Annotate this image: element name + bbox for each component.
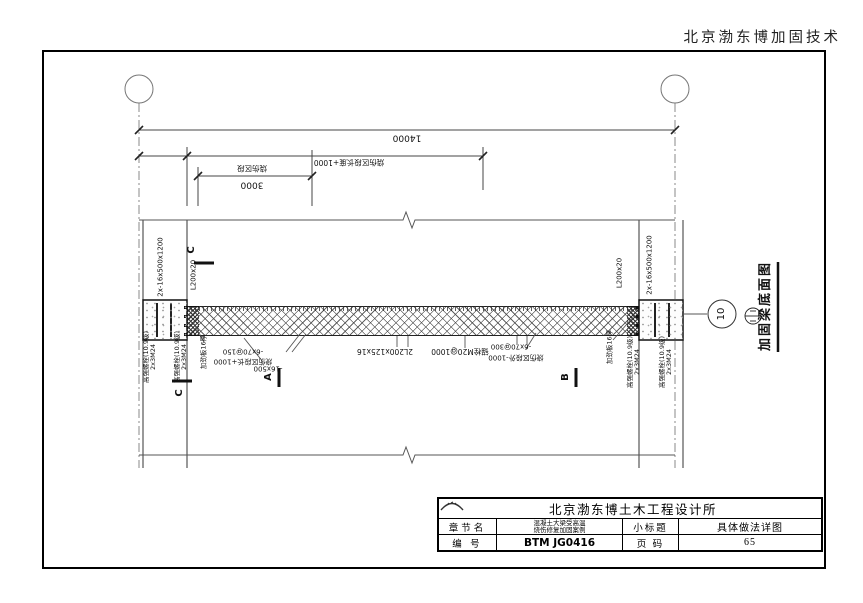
drawing-title: 加固梁底面图	[759, 261, 773, 351]
section-mark-c-top: C	[187, 246, 198, 253]
number-label: 编 号	[439, 535, 497, 550]
label-angle-pair-right: 2x-16x500x1200	[646, 235, 653, 295]
dim-zone-name: 烧伤区段	[237, 164, 267, 172]
bolt-heads	[184, 306, 639, 336]
title-block: 北京渤东博土木工程设计所 章节名 混凝土大梁受高温 烧伤修复加固案例 小标题 具…	[437, 497, 823, 552]
grid-centerlines	[139, 103, 675, 468]
edge-lines	[139, 212, 675, 463]
label-anchor-bolt: 锚栓M20@1000	[431, 347, 489, 355]
subtitle-value: 具体做法详图	[679, 519, 821, 534]
label-hs-bolt-left-2: 高强螺栓(10.9级) 2x3M24	[174, 331, 188, 383]
drawing-number: BTM JG0416	[497, 535, 623, 550]
title-block-firm-row: 北京渤东博土木工程设计所	[439, 499, 821, 519]
chapter-name: 混凝土大梁受高温 烧伤修复加固案例	[497, 519, 623, 534]
label-hs-bolt-right-2: 高强螺栓(10.9级) 2x3M24	[659, 336, 673, 388]
section-cut-bars	[172, 263, 576, 387]
concrete-texture-right	[639, 300, 683, 340]
break-symbol-top	[399, 212, 419, 228]
title-block-row-chapter: 章节名 混凝土大梁受高温 烧伤修复加固案例 小标题 具体做法详图	[439, 519, 821, 535]
section-mark-b: B	[561, 373, 572, 381]
section-mark-a: A	[264, 373, 275, 381]
column-edges	[143, 220, 683, 468]
dim-zone-plus: 烧伤区段长度+1000	[314, 158, 384, 166]
bolt-rows	[157, 303, 669, 337]
label-strap-300-note: 烧伤区段外-1000	[488, 353, 543, 360]
label-strap-300: -6x70@300	[491, 342, 531, 349]
label-stiffener-left: 加劲板16厚	[201, 335, 208, 369]
grid-bubble-right	[661, 75, 689, 103]
label-angle-pair-left: 2x-16x500x1200	[157, 237, 164, 297]
page-label: 页 码	[623, 535, 679, 550]
label-bottom-plate: -16x500	[254, 364, 283, 371]
label-end-angle-left: L200x20	[190, 260, 197, 290]
label-stiffener-right: 加劲板16厚	[607, 330, 614, 364]
dim-overall: 14000	[393, 132, 422, 141]
chapter-label: 章节名	[439, 519, 497, 534]
drawing-sheet: 北京渤东博加固技术	[0, 0, 863, 603]
label-hs-bolt-right-1: 高强螺栓(10.9级) 2x3M24	[627, 336, 641, 388]
break-symbol-bottom	[399, 447, 419, 463]
title-block-row-number: 编 号 BTM JG0416 页 码 65	[439, 535, 821, 550]
grid-bubble-left	[125, 75, 153, 103]
dim-zone-length: 3000	[241, 179, 264, 188]
page-number: 65	[679, 535, 821, 550]
label-end-angle-right: L200x20	[616, 258, 623, 288]
label-hs-bolt-left-1: 高强螺栓(10.9级) 2x3M24	[143, 331, 157, 383]
label-channels: 2L200x125x16	[357, 347, 413, 355]
subtitle-label: 小标题	[623, 519, 679, 534]
firm-name: 北京渤东博土木工程设计所	[549, 499, 717, 518]
section-mark-c-bottom: C	[175, 389, 186, 396]
label-strap-150: -6x70@150	[223, 347, 263, 354]
axis-bubble-label: 10	[717, 308, 728, 321]
